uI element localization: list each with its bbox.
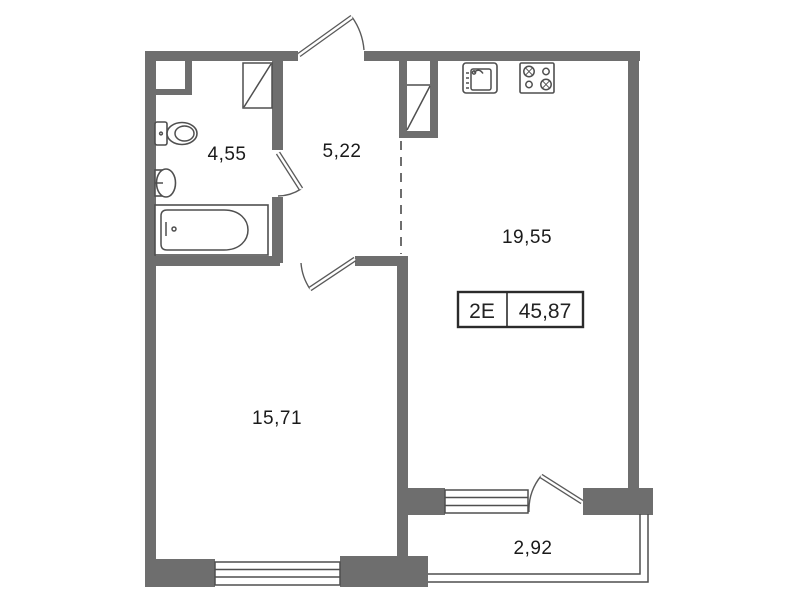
bathtub-icon	[155, 205, 268, 255]
unit-type-label: 2Е	[469, 300, 495, 323]
bathroom-door-arc	[278, 189, 301, 196]
floor-plan-drawing: 4,55 5,22 19,55 15,71 2,92 2Е 45,87	[0, 0, 799, 600]
shower-cabinet-icon	[243, 63, 272, 108]
unit-total-area-label: 45,87	[519, 300, 572, 323]
entrance-door	[299, 17, 364, 55]
wall-kitchen-window-pier-right	[583, 488, 653, 515]
ventilation-duct-icon	[156, 61, 192, 95]
duct-cavity	[156, 61, 185, 89]
stove-burners-icon	[520, 63, 554, 93]
floor-plan-page: 4,55 5,22 19,55 15,71 2,92 2Е 45,87	[0, 0, 799, 600]
living-room-door	[301, 259, 355, 289]
unit-badge: 2Е 45,87	[458, 292, 583, 327]
wall-horizontal-left	[145, 256, 280, 266]
living-room-window	[215, 562, 340, 585]
living-room-door-leaf-core	[310, 259, 355, 289]
bathroom-area-label: 4,55	[208, 144, 247, 165]
wardrobe-cavity	[407, 61, 430, 131]
wall-bathroom-right-lower	[272, 197, 283, 263]
living-room-door-arc	[301, 263, 310, 289]
wall-bathroom-right-upper	[272, 51, 283, 150]
kitchen-sink-icon	[463, 63, 497, 93]
wall-kitchen-window-pier-left	[397, 488, 445, 515]
kitchen-window	[445, 490, 528, 513]
wall-right	[628, 51, 639, 490]
wall-interior-vertical	[397, 256, 408, 488]
entrance-door-leaf-core	[299, 17, 352, 55]
wardrobe-icon	[399, 61, 438, 138]
kitchen-window-frame	[445, 490, 528, 513]
bathroom-door	[278, 153, 301, 196]
living-room-window-frame	[215, 562, 340, 585]
balcony-area-label: 2,92	[514, 538, 553, 559]
wall-bottom-block-left	[145, 559, 215, 587]
kitchen-living-area-label: 19,55	[502, 227, 552, 248]
wall-bottom-block-right	[340, 556, 428, 587]
entrance-door-arc	[352, 17, 364, 50]
toilet-tank	[155, 122, 167, 145]
living-room-area-label: 15,71	[252, 408, 302, 429]
washbasin-icon	[155, 169, 176, 197]
bathroom-door-leaf-core	[278, 153, 301, 189]
balcony-door-leaf-core	[541, 476, 582, 502]
balcony-door-arc	[529, 476, 541, 512]
wall-balcony-left	[397, 515, 408, 559]
hallway-area-label: 5,22	[323, 141, 362, 162]
toilet-icon	[155, 122, 197, 145]
balcony-door	[529, 476, 582, 512]
wall-top-right	[364, 51, 640, 61]
